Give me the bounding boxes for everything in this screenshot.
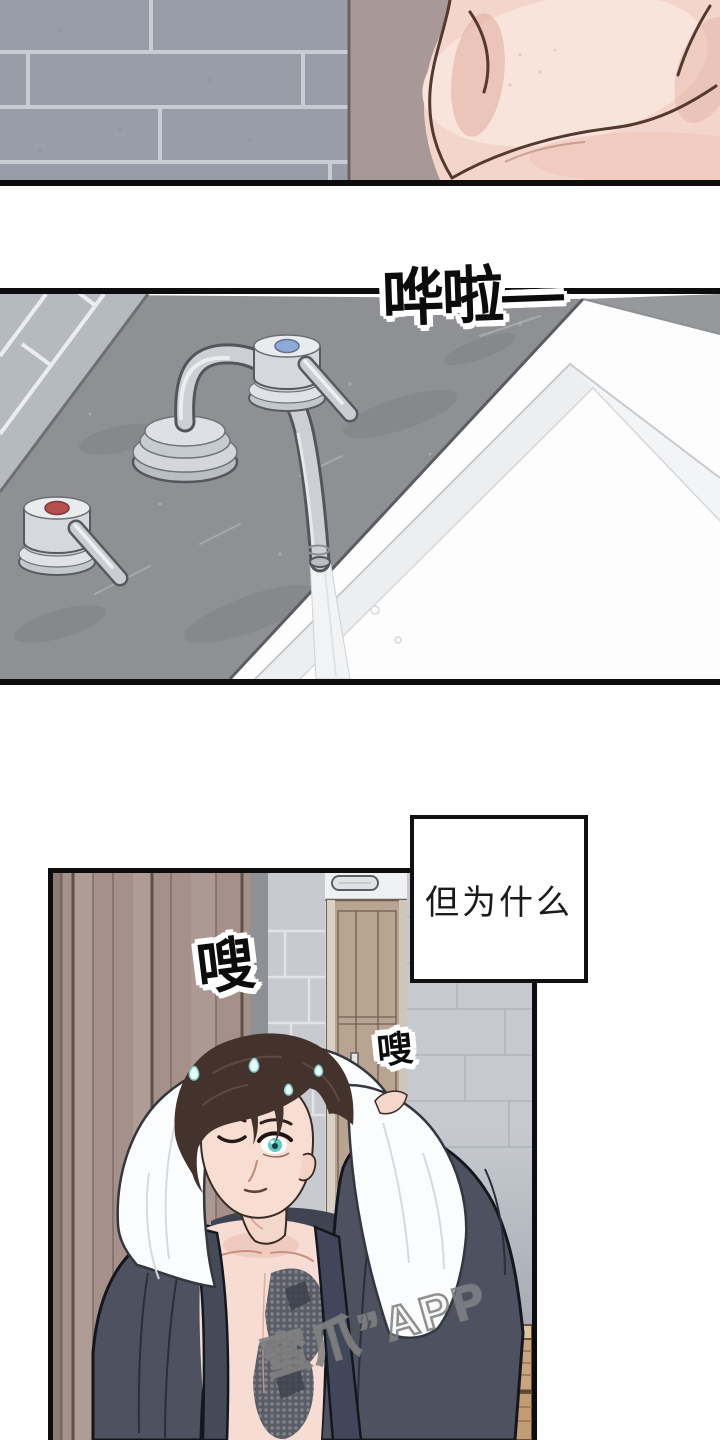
panel-sink <box>0 288 720 685</box>
sfx-swish-large: 嗖 <box>194 935 257 999</box>
speech-text: 但为什么 <box>425 875 573 924</box>
sfx-water-running: 哗啦— <box>381 263 563 331</box>
brick-wall <box>0 0 348 180</box>
chest-panel-art <box>0 0 720 180</box>
sink-panel-art <box>0 294 720 679</box>
bare-chest-art <box>408 0 720 180</box>
door-lintel <box>325 873 410 900</box>
hot-indicator-dot <box>45 502 69 515</box>
cold-indicator-dot <box>275 340 299 353</box>
speech-box: 但为什么 <box>410 815 588 983</box>
water-sparkle <box>371 606 379 614</box>
panel-chest-closeup <box>0 0 720 186</box>
comic-page: 哗啦— 但为什么 嗖 嗖 蜜爪”APP <box>0 0 720 1440</box>
water-sparkle <box>395 637 401 643</box>
sfx-swish-small: 嗖 <box>375 1030 413 1069</box>
